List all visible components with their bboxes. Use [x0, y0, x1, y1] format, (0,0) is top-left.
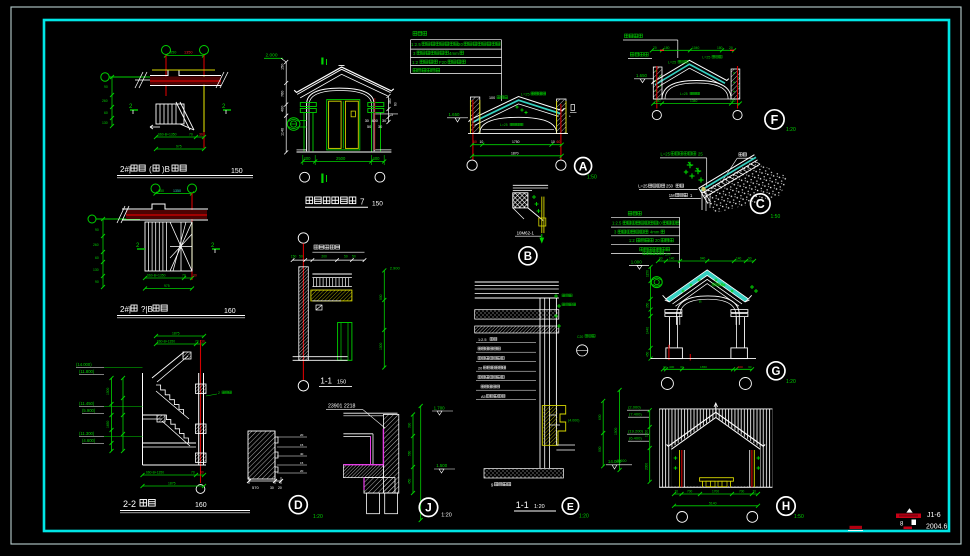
svg-text:1040: 1040	[692, 46, 700, 50]
svg-text:1200: 1200	[645, 430, 649, 437]
svg-text:2.000: 2.000	[266, 53, 278, 59]
svg-text:23901 2218: 23901 2218	[328, 404, 356, 410]
svg-text:1700: 1700	[712, 490, 719, 494]
svg-text:1.700: 1.700	[434, 405, 446, 410]
svg-text:30: 30	[680, 365, 684, 369]
svg-text:660-B+1350: 660-B+1350	[146, 471, 164, 475]
svg-text:180: 180	[664, 46, 670, 50]
svg-text:1:50: 1:50	[771, 214, 781, 220]
svg-text:(4.000): (4.000)	[568, 419, 579, 423]
svg-text:2.000: 2.000	[617, 459, 627, 463]
svg-text:D: D	[294, 498, 303, 512]
svg-text:(11.800): (11.800)	[79, 369, 95, 374]
svg-text:450: 450	[646, 351, 650, 357]
svg-text:160: 160	[195, 502, 207, 509]
svg-text:100: 100	[489, 96, 495, 100]
svg-text:90: 90	[95, 280, 99, 284]
svg-text:90: 90	[659, 257, 663, 261]
svg-text:15: 15	[300, 443, 304, 447]
svg-text:1140: 1140	[281, 128, 285, 136]
svg-text:60: 60	[557, 140, 561, 144]
svg-text:400: 400	[373, 156, 381, 161]
svg-text:70: 70	[753, 490, 757, 494]
svg-text:1875: 1875	[168, 482, 176, 486]
svg-text:1:50: 1:50	[794, 514, 804, 520]
svg-text:1:20: 1:20	[579, 514, 589, 520]
svg-text:150: 150	[337, 380, 346, 386]
svg-text:1500: 1500	[379, 342, 383, 350]
svg-text:150: 150	[231, 168, 243, 175]
svg-text:350: 350	[646, 302, 650, 308]
svg-text:975: 975	[176, 145, 182, 149]
svg-text:400: 400	[281, 106, 285, 112]
svg-text:4mm: 4mm	[449, 51, 459, 56]
svg-text:30: 30	[201, 340, 205, 344]
svg-text:1:2.5: 1:2.5	[478, 338, 486, 342]
svg-text:10M62-1: 10M62-1	[517, 231, 535, 236]
svg-text:20: 20	[278, 486, 282, 490]
svg-text:30: 30	[378, 125, 382, 129]
svg-text:700: 700	[739, 490, 745, 494]
svg-text:50: 50	[367, 125, 371, 129]
svg-text:(7.400): (7.400)	[629, 412, 642, 417]
svg-text:1440: 1440	[646, 327, 650, 334]
svg-text:660-B+1350: 660-B+1350	[158, 133, 177, 137]
svg-text:70: 70	[195, 340, 199, 344]
svg-text:(11.450): (11.450)	[79, 401, 95, 406]
svg-text:50: 50	[352, 255, 356, 259]
svg-text:1:20: 1:20	[441, 513, 452, 519]
svg-text:150: 150	[291, 255, 297, 259]
svg-text:940: 940	[700, 257, 706, 261]
svg-text:(: (	[149, 165, 152, 174]
svg-text:4mm: 4mm	[650, 230, 660, 235]
svg-text:E: E	[567, 501, 574, 513]
svg-text:1.650: 1.650	[449, 112, 461, 117]
svg-text:1:20: 1:20	[786, 127, 796, 133]
svg-text:1875: 1875	[172, 332, 180, 336]
svg-text:2: 2	[218, 391, 220, 395]
svg-text:30: 30	[270, 486, 274, 490]
svg-text:130: 130	[93, 268, 99, 272]
svg-text:2.900: 2.900	[390, 266, 401, 271]
svg-text:260: 260	[102, 99, 108, 103]
svg-text:90: 90	[104, 85, 108, 89]
svg-text:600: 600	[598, 414, 602, 420]
svg-text:50: 50	[344, 255, 348, 259]
svg-text:20: 20	[300, 433, 304, 437]
svg-text:1:20: 1:20	[313, 514, 323, 520]
svg-text:150: 150	[281, 64, 285, 70]
svg-text:60: 60	[104, 111, 108, 115]
svg-text:1500: 1500	[614, 427, 618, 435]
svg-text:400: 400	[738, 365, 743, 369]
svg-text:390: 390	[408, 422, 412, 428]
svg-text:250: 250	[666, 184, 674, 189]
svg-text:2#|: 2#|	[120, 305, 131, 314]
svg-text:L=25: L=25	[521, 93, 530, 97]
svg-text:30: 30	[382, 119, 386, 123]
svg-text:20: 20	[729, 46, 733, 50]
svg-text:1650: 1650	[700, 365, 707, 369]
svg-text:1500: 1500	[106, 387, 110, 395]
svg-text:C: C	[756, 197, 765, 211]
svg-text:180: 180	[717, 46, 723, 50]
svg-text:25: 25	[698, 152, 703, 157]
svg-text:30: 30	[748, 365, 752, 369]
svg-text:70: 70	[182, 274, 186, 278]
svg-text:200: 200	[321, 255, 327, 259]
svg-text:400: 400	[372, 119, 378, 123]
svg-text:150: 150	[372, 201, 383, 208]
svg-text:F: F	[771, 113, 779, 127]
svg-text:900: 900	[598, 446, 602, 452]
svg-text:140: 140	[736, 257, 742, 261]
svg-text:H: H	[782, 501, 790, 513]
svg-text:1M: 1M	[669, 193, 675, 198]
svg-text:B: B	[524, 251, 532, 263]
svg-text:(6.400): (6.400)	[629, 436, 642, 441]
svg-text:2500: 2500	[336, 156, 346, 161]
svg-text:1.650: 1.650	[636, 73, 648, 78]
svg-text:20: 20	[458, 42, 463, 47]
svg-text:1-1: 1-1	[516, 500, 529, 510]
svg-text:J: J	[425, 501, 432, 515]
svg-text:30: 30	[199, 133, 203, 137]
svg-text:L=25: L=25	[500, 123, 508, 127]
svg-text:10: 10	[480, 140, 484, 144]
svg-text:L=25: L=25	[702, 56, 710, 60]
svg-text:700: 700	[687, 490, 693, 494]
svg-text:20: 20	[657, 221, 662, 226]
svg-text:60: 60	[473, 140, 477, 144]
svg-text:180: 180	[655, 99, 661, 103]
svg-text:1:2: 1:2	[412, 60, 419, 65]
svg-text:1350: 1350	[184, 51, 192, 55]
svg-text:130: 130	[102, 121, 108, 125]
svg-text:10: 10	[551, 140, 555, 144]
svg-text:G: G	[772, 366, 781, 378]
svg-text:40: 40	[300, 452, 304, 456]
svg-text:1:2: 1:2	[629, 238, 635, 243]
svg-text:1.500: 1.500	[436, 463, 448, 468]
svg-text:L=25: L=25	[680, 92, 688, 96]
svg-text:(5.900): (5.900)	[82, 408, 96, 413]
svg-text:180: 180	[730, 99, 736, 103]
svg-text:L=25: L=25	[638, 184, 648, 189]
svg-text:90: 90	[95, 228, 99, 232]
svg-text:160: 160	[224, 308, 236, 315]
svg-text:1:20: 1:20	[786, 379, 796, 385]
svg-text:2#|: 2#|	[120, 165, 131, 174]
svg-text:60: 60	[394, 102, 398, 106]
svg-text:(4.600): (4.600)	[82, 438, 96, 443]
svg-text:20: 20	[653, 46, 657, 50]
svg-text:?|B: ?|B	[141, 305, 153, 314]
svg-text:570: 570	[252, 485, 259, 490]
svg-text:30: 30	[663, 365, 667, 369]
svg-text:R: R	[699, 300, 702, 304]
svg-text:1:2.5: 1:2.5	[612, 221, 622, 226]
svg-text:70: 70	[675, 490, 679, 494]
svg-text:1.000: 1.000	[631, 260, 643, 265]
svg-text:1:50: 1:50	[587, 175, 597, 181]
svg-text:400: 400	[669, 365, 674, 369]
svg-text:L=25: L=25	[668, 61, 676, 65]
svg-text:760: 760	[281, 91, 285, 97]
svg-text:20: 20	[478, 367, 482, 371]
svg-text:1650: 1650	[106, 420, 110, 428]
svg-text:F20: F20	[439, 60, 447, 65]
svg-text:560: 560	[408, 450, 412, 456]
svg-text:2000: 2000	[645, 463, 649, 470]
svg-text:(2.000): (2.000)	[628, 405, 641, 410]
svg-text:70: 70	[189, 133, 193, 137]
svg-text:90: 90	[748, 257, 752, 261]
svg-text:260: 260	[93, 243, 99, 247]
svg-text:(11.300): (11.300)	[79, 431, 95, 436]
svg-text:A5: A5	[481, 395, 486, 399]
svg-text:30: 30	[200, 471, 204, 475]
svg-text:15: 15	[300, 461, 304, 465]
svg-text:660-B+1350: 660-B+1350	[157, 340, 175, 344]
svg-text:1150: 1150	[646, 270, 650, 277]
svg-text:650: 650	[170, 51, 176, 55]
svg-text:1750: 1750	[512, 140, 520, 144]
svg-text:360: 360	[388, 98, 392, 104]
svg-text:5140: 5140	[709, 501, 717, 505]
svg-text:)B: )B	[162, 165, 170, 174]
svg-text:1350: 1350	[173, 189, 181, 193]
svg-text:1-1: 1-1	[320, 377, 332, 386]
svg-text:30: 30	[365, 119, 369, 123]
svg-text:975: 975	[164, 284, 170, 288]
svg-text:650: 650	[158, 189, 164, 193]
svg-text:900: 900	[379, 294, 383, 300]
svg-text:1:20: 1:20	[534, 504, 545, 510]
svg-text:20: 20	[300, 469, 304, 473]
svg-text:400: 400	[304, 156, 312, 161]
svg-text:C20: C20	[577, 335, 583, 339]
svg-text:2004.6: 2004.6	[926, 524, 948, 531]
svg-text:2-2: 2-2	[123, 499, 136, 509]
svg-text:30: 30	[193, 274, 197, 278]
svg-text:20: 20	[655, 238, 660, 243]
svg-text:7: 7	[360, 198, 365, 207]
svg-text:1340: 1340	[690, 99, 698, 103]
svg-text:70: 70	[191, 471, 195, 475]
svg-text:3: 3	[391, 113, 393, 117]
svg-text:450: 450	[408, 478, 412, 484]
svg-text:1870: 1870	[511, 151, 519, 155]
svg-text:(19.200): (19.200)	[628, 429, 644, 434]
svg-text:L=25: L=25	[661, 152, 671, 157]
svg-text:60: 60	[95, 256, 99, 260]
svg-text:J1-6: J1-6	[927, 512, 941, 519]
svg-text:660-B+1350: 660-B+1350	[147, 274, 166, 278]
svg-text:1:2.5: 1:2.5	[411, 42, 421, 47]
svg-text:(14.000): (14.000)	[76, 362, 92, 367]
svg-text:50: 50	[299, 255, 303, 259]
svg-text:A: A	[579, 159, 588, 173]
svg-text:140: 140	[669, 257, 675, 261]
